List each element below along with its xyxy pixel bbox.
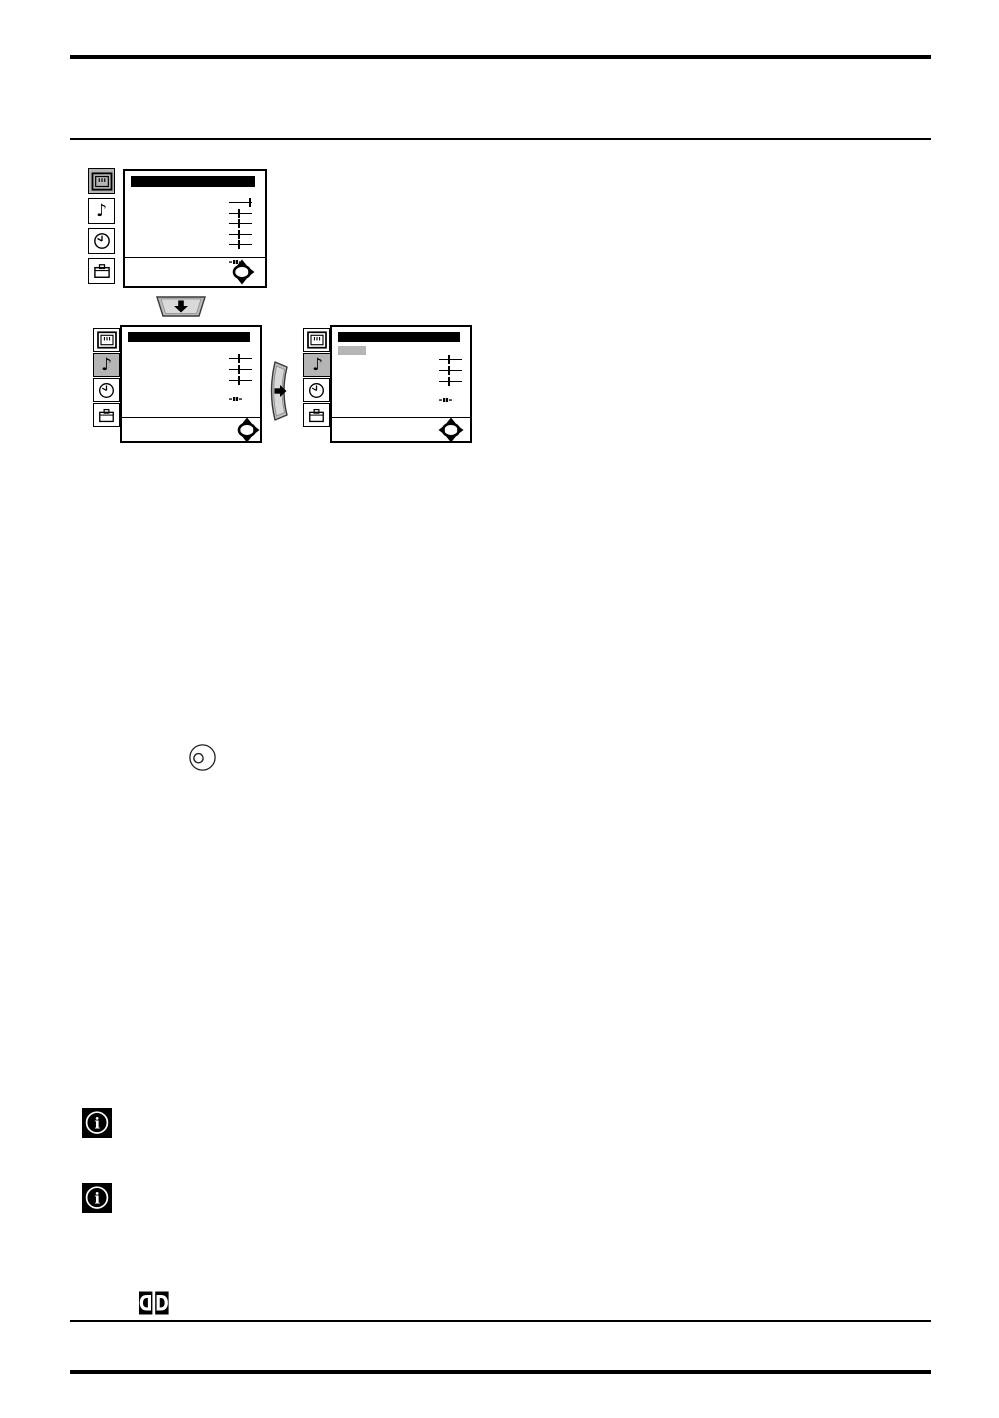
slider-row: [229, 376, 252, 385]
mini-scale-icon: [229, 387, 242, 406]
service-menu-icon: [93, 403, 120, 427]
clock-icon: [307, 381, 326, 400]
cursor-down-key: [154, 294, 208, 319]
clock-icon: [92, 231, 112, 251]
picture-menu-icon: [88, 168, 115, 194]
slider-row: [229, 198, 252, 207]
osd-sound-menu: ♪: [93, 325, 262, 443]
slider-group: [439, 355, 462, 386]
mini-scale-icon: [439, 388, 452, 407]
osd-picture-menu: ♪: [88, 166, 267, 288]
dolby-left-d: D: [139, 1292, 153, 1316]
picture-menu-icon: [303, 328, 330, 352]
note-icon: ♪: [96, 203, 107, 220]
menu-title-bar: [338, 332, 460, 342]
top-thin-rule: [70, 138, 931, 140]
picture-icon: [96, 331, 118, 349]
bottom-thin-rule: [70, 1320, 931, 1322]
menu-title-bar: [131, 176, 255, 187]
osd-panel: [120, 325, 262, 443]
cursor-right-key: [266, 360, 296, 422]
osd-sound-menu-selected: ♪: [303, 325, 472, 443]
svg-text:D: D: [155, 1293, 169, 1315]
briefcase-icon: [92, 261, 112, 281]
note-icon: ♪: [312, 357, 323, 374]
slider-row: [229, 354, 252, 363]
timer-menu-icon: [303, 378, 330, 402]
slider-row: [229, 230, 252, 239]
timer-menu-icon: [88, 228, 115, 254]
joystick-up-down-right-icon: [229, 259, 255, 285]
osd-footer: [125, 257, 265, 286]
osd-panel: [330, 325, 472, 443]
service-menu-icon: [88, 258, 115, 284]
info-icon: i: [82, 1108, 112, 1138]
joystick-up-down-right-icon: [234, 417, 260, 443]
slider-row: [439, 355, 462, 364]
selected-menu-item: [338, 346, 366, 355]
osd-footer: [122, 417, 260, 441]
osd-panel: [123, 169, 267, 288]
manual-page: ♪: [0, 0, 999, 1418]
slider-row: [229, 209, 252, 218]
bottom-thick-rule: [70, 1370, 931, 1374]
sound-menu-icon: ♪: [88, 198, 115, 224]
slider-row: [439, 366, 462, 375]
svg-text:i: i: [94, 1189, 100, 1207]
ok-dial-icon: [188, 743, 218, 773]
slider-row: [229, 219, 252, 228]
dolby-right-d: D: [155, 1292, 169, 1316]
slider-row: [439, 377, 462, 386]
svg-text:D: D: [139, 1293, 153, 1315]
note-icon: ♪: [101, 357, 112, 374]
svg-text:i: i: [94, 1114, 100, 1132]
timer-menu-icon: [93, 378, 120, 402]
top-thick-rule: [70, 55, 931, 59]
sound-menu-icon: ♪: [93, 353, 120, 377]
briefcase-icon: [97, 406, 116, 425]
service-menu-icon: [303, 403, 330, 427]
clock-icon: [97, 381, 116, 400]
slider-row: [229, 365, 252, 374]
slider-group: [229, 354, 252, 385]
joystick-four-way-icon: [438, 417, 464, 443]
sound-menu-icon: ♪: [303, 353, 331, 377]
menu-title-bar: [128, 332, 250, 342]
slider-row: [229, 240, 252, 249]
slider-group: [229, 198, 252, 249]
picture-icon: [306, 331, 328, 349]
dolby-logo: D D: [139, 1291, 169, 1315]
picture-menu-icon: [93, 328, 120, 352]
info-icon: i: [82, 1183, 112, 1213]
briefcase-icon: [307, 406, 326, 425]
osd-footer: [332, 417, 470, 441]
picture-icon: [91, 172, 113, 191]
